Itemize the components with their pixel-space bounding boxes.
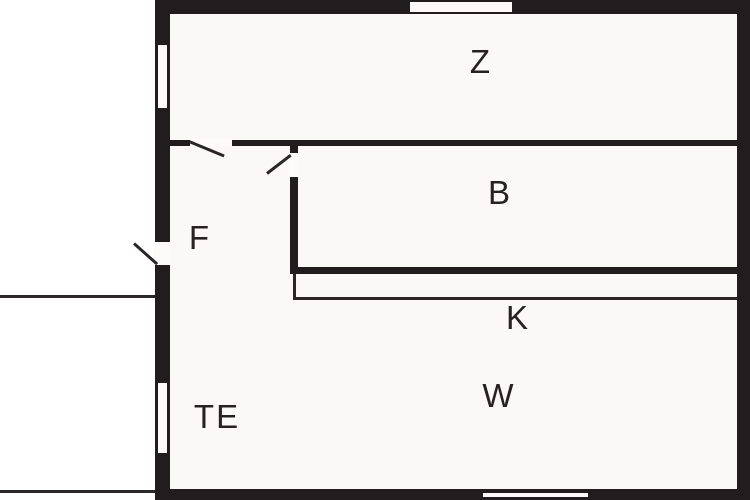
window-top-wall: [410, 2, 512, 12]
house-interior-fill: [155, 0, 750, 500]
wall-exterior-right: [737, 0, 750, 500]
wall-interior-b-bottom: [290, 267, 737, 274]
terrace-outline-top: [0, 295, 155, 298]
room-label-k: K: [506, 299, 530, 337]
room-label-te: TE: [194, 398, 240, 436]
room-label-z: Z: [470, 43, 492, 81]
window-left-wall-te: [158, 383, 167, 453]
terrace-outline-bottom: [0, 490, 155, 493]
room-label-w: W: [482, 377, 515, 415]
floor-plan-canvas: Z B F K W TE: [0, 0, 750, 500]
wall-exterior-bottom: [155, 489, 750, 500]
window-bottom-wall: [483, 493, 588, 497]
window-left-wall-z: [158, 45, 167, 108]
room-label-f: F: [189, 219, 211, 257]
wall-interior-z-separator: [170, 140, 737, 146]
room-label-b: B: [488, 174, 512, 212]
